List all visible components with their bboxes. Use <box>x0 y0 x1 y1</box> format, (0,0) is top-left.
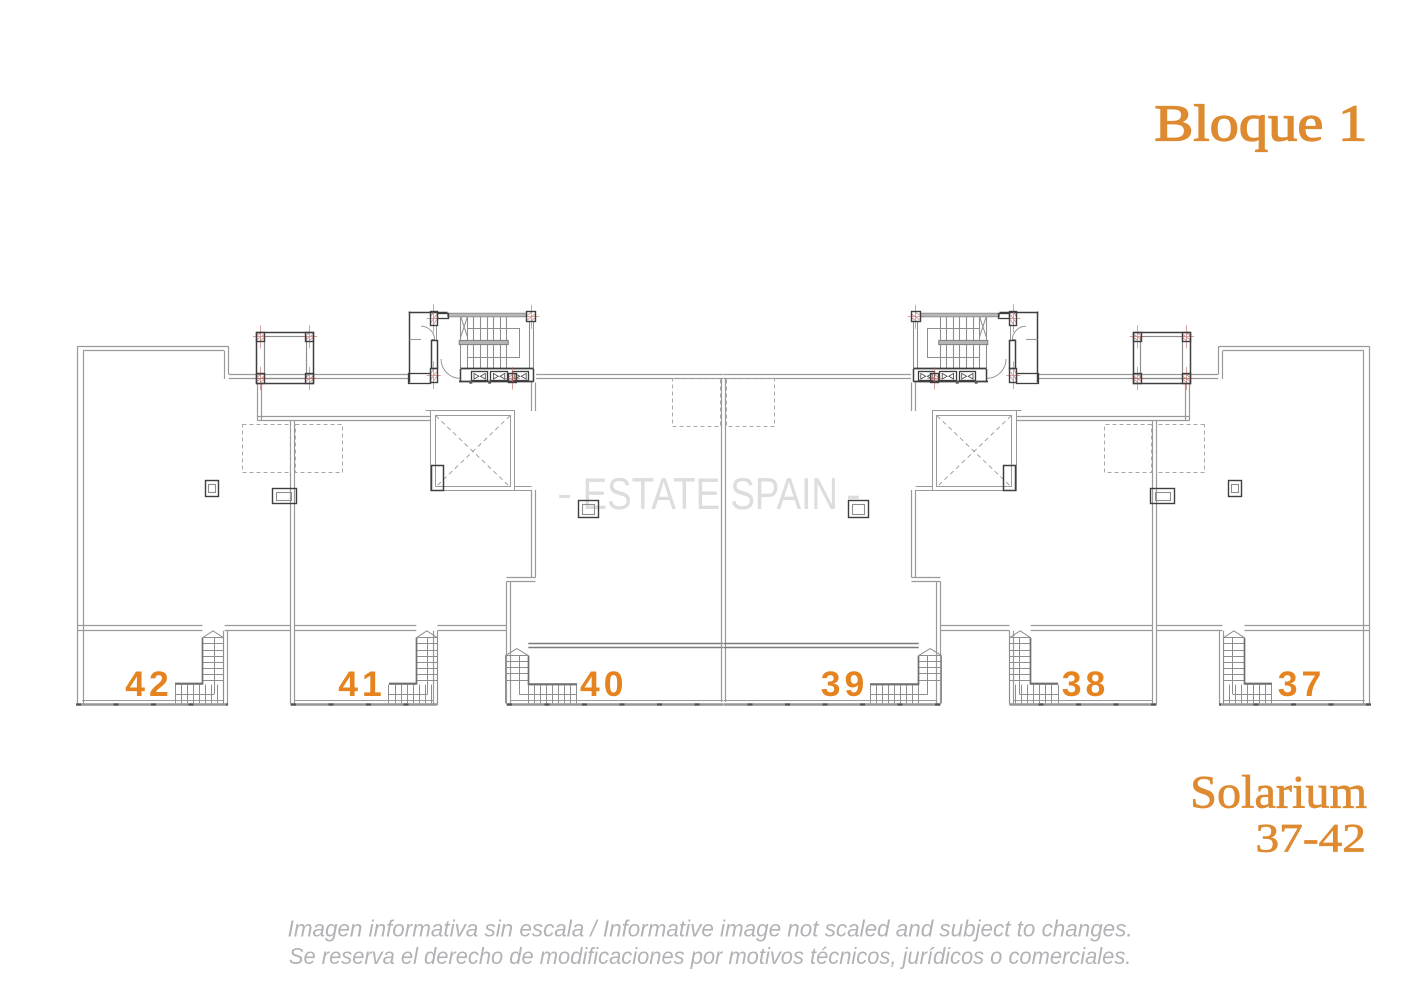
svg-text:40: 40 <box>580 664 628 704</box>
svg-text:Imagen informativa sin escala: Imagen informativa sin escala / Informat… <box>288 916 1133 942</box>
svg-text:42: 42 <box>125 664 173 704</box>
svg-text:Solarium: Solarium <box>1190 767 1367 819</box>
svg-text:41: 41 <box>338 664 386 704</box>
svg-text:ESTATE SPAIN: ESTATE SPAIN <box>583 470 838 519</box>
svg-text:37: 37 <box>1278 664 1326 704</box>
svg-text:Bloque 1: Bloque 1 <box>1154 96 1367 153</box>
svg-text:38: 38 <box>1062 664 1110 704</box>
svg-text:39: 39 <box>821 664 869 704</box>
svg-text:Se reserva el derecho de modif: Se reserva el derecho de modificaciones … <box>289 943 1132 969</box>
svg-text:37-42: 37-42 <box>1256 815 1366 860</box>
